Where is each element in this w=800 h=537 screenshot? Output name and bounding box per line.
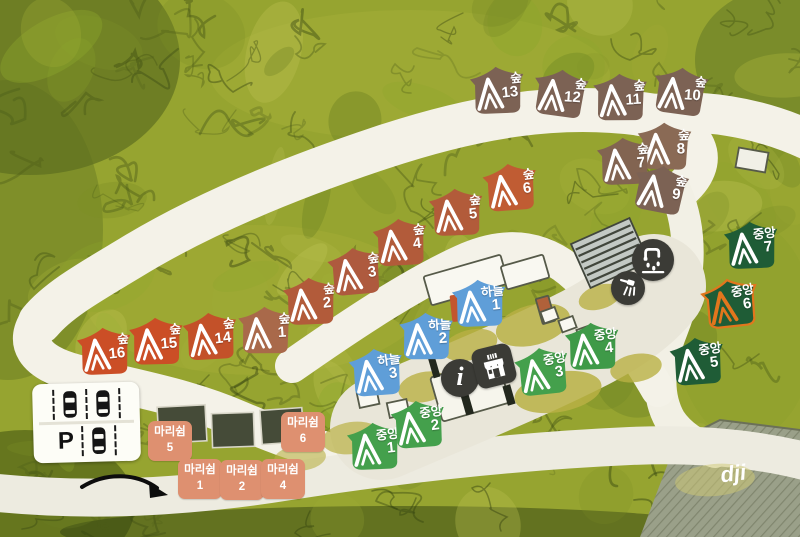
parking-stalls-row <box>38 386 134 425</box>
shower-icon[interactable] <box>611 271 645 305</box>
stall-divider <box>81 426 84 456</box>
site-label-marisum-2[interactable]: 마리쉼 2 <box>220 460 264 500</box>
tent-marker-central-5[interactable]: 중앙 5 <box>666 332 730 390</box>
tent-marker-forest-5[interactable]: 숲 5 <box>426 184 489 240</box>
tent-marker-central-2[interactable]: 중앙 2 <box>387 395 451 453</box>
tent-marker-forest-10[interactable]: 숲 10 <box>650 64 711 118</box>
car-icon <box>61 389 79 419</box>
shower-glyph <box>616 276 640 300</box>
site-label-marisum-5[interactable]: 마리쉼 5 <box>148 421 192 461</box>
site-label-marisum-4[interactable]: 마리쉼 4 <box>261 459 305 499</box>
tent-number: 5 <box>468 205 478 223</box>
stall-divider <box>118 388 121 418</box>
tent-number: 10 <box>683 86 701 104</box>
tent-marker-central-4[interactable]: 중앙 4 <box>562 318 625 374</box>
stall-divider <box>85 389 88 419</box>
tent-number: 13 <box>501 83 519 102</box>
site-number: 6 <box>281 432 325 448</box>
site-number: 5 <box>148 441 192 457</box>
tent-number: 12 <box>563 88 581 106</box>
parking-sign[interactable]: P <box>32 382 141 464</box>
parking-letter-row: P <box>39 423 135 459</box>
car-icon <box>90 425 108 455</box>
tent-number: 2 <box>438 330 448 348</box>
tent-number: 7 <box>763 238 773 256</box>
tent-marker-central-6[interactable]: 중앙 6 <box>698 273 764 332</box>
dji-watermark: dji <box>719 459 748 487</box>
car-icon <box>94 388 112 418</box>
tent-marker-forest-1[interactable]: 숲 1 <box>235 303 296 357</box>
site-label: 마리쉼 <box>148 425 192 441</box>
site-label: 마리쉼 <box>261 463 305 479</box>
tent-number: 8 <box>676 140 685 157</box>
site-label: 마리쉼 <box>220 464 264 480</box>
site-number: 2 <box>220 480 264 496</box>
tent-number: 15 <box>160 334 178 352</box>
tent-marker-central-7[interactable]: 중앙 7 <box>721 217 784 273</box>
tent-marker-forest-11[interactable]: 숲 11 <box>590 70 651 124</box>
tent-marker-forest-14[interactable]: 숲 14 <box>179 308 243 365</box>
storefront-glyph <box>477 349 512 384</box>
tent-number: 16 <box>108 344 126 363</box>
info-letter: i <box>456 364 463 390</box>
site-number: 1 <box>178 479 222 495</box>
tent-marker-sky-3[interactable]: 하늘 3 <box>345 343 409 401</box>
tent-marker-sky-2[interactable]: 하늘 2 <box>396 309 457 363</box>
tent-number: 11 <box>625 91 642 109</box>
site-label-marisum-1[interactable]: 마리쉼 1 <box>178 459 222 499</box>
tent-marker-forest-13[interactable]: 숲 13 <box>467 62 530 118</box>
stall-divider <box>52 390 55 420</box>
tent-marker-forest-12[interactable]: 숲 12 <box>530 66 591 120</box>
tent-number: 14 <box>214 329 233 348</box>
parking-letter: P <box>58 427 75 455</box>
tent-number: 2 <box>322 294 332 312</box>
site-label-marisum-6[interactable]: 마리쉼 6 <box>281 412 325 452</box>
tent-number: 1 <box>277 324 287 342</box>
site-number: 4 <box>261 479 305 495</box>
tent-number: 4 <box>604 339 614 357</box>
tent-number: 1 <box>491 296 501 314</box>
site-label: 마리쉼 <box>281 416 325 432</box>
tent-marker-forest-6[interactable]: 숲 6 <box>479 158 543 216</box>
campground-map: dji P <box>0 0 800 537</box>
site-label: 마리쉼 <box>178 463 222 479</box>
tent-marker-forest-16[interactable]: 숲 16 <box>74 323 137 379</box>
tent-marker-forest-15[interactable]: 숲 15 <box>126 314 188 369</box>
faucet-glyph <box>638 245 668 275</box>
tent-marker-forest-9[interactable]: 숲 9 <box>629 161 693 218</box>
stall-divider <box>114 425 117 455</box>
tent-marker-sky-1[interactable]: 하늘 1 <box>449 275 512 331</box>
